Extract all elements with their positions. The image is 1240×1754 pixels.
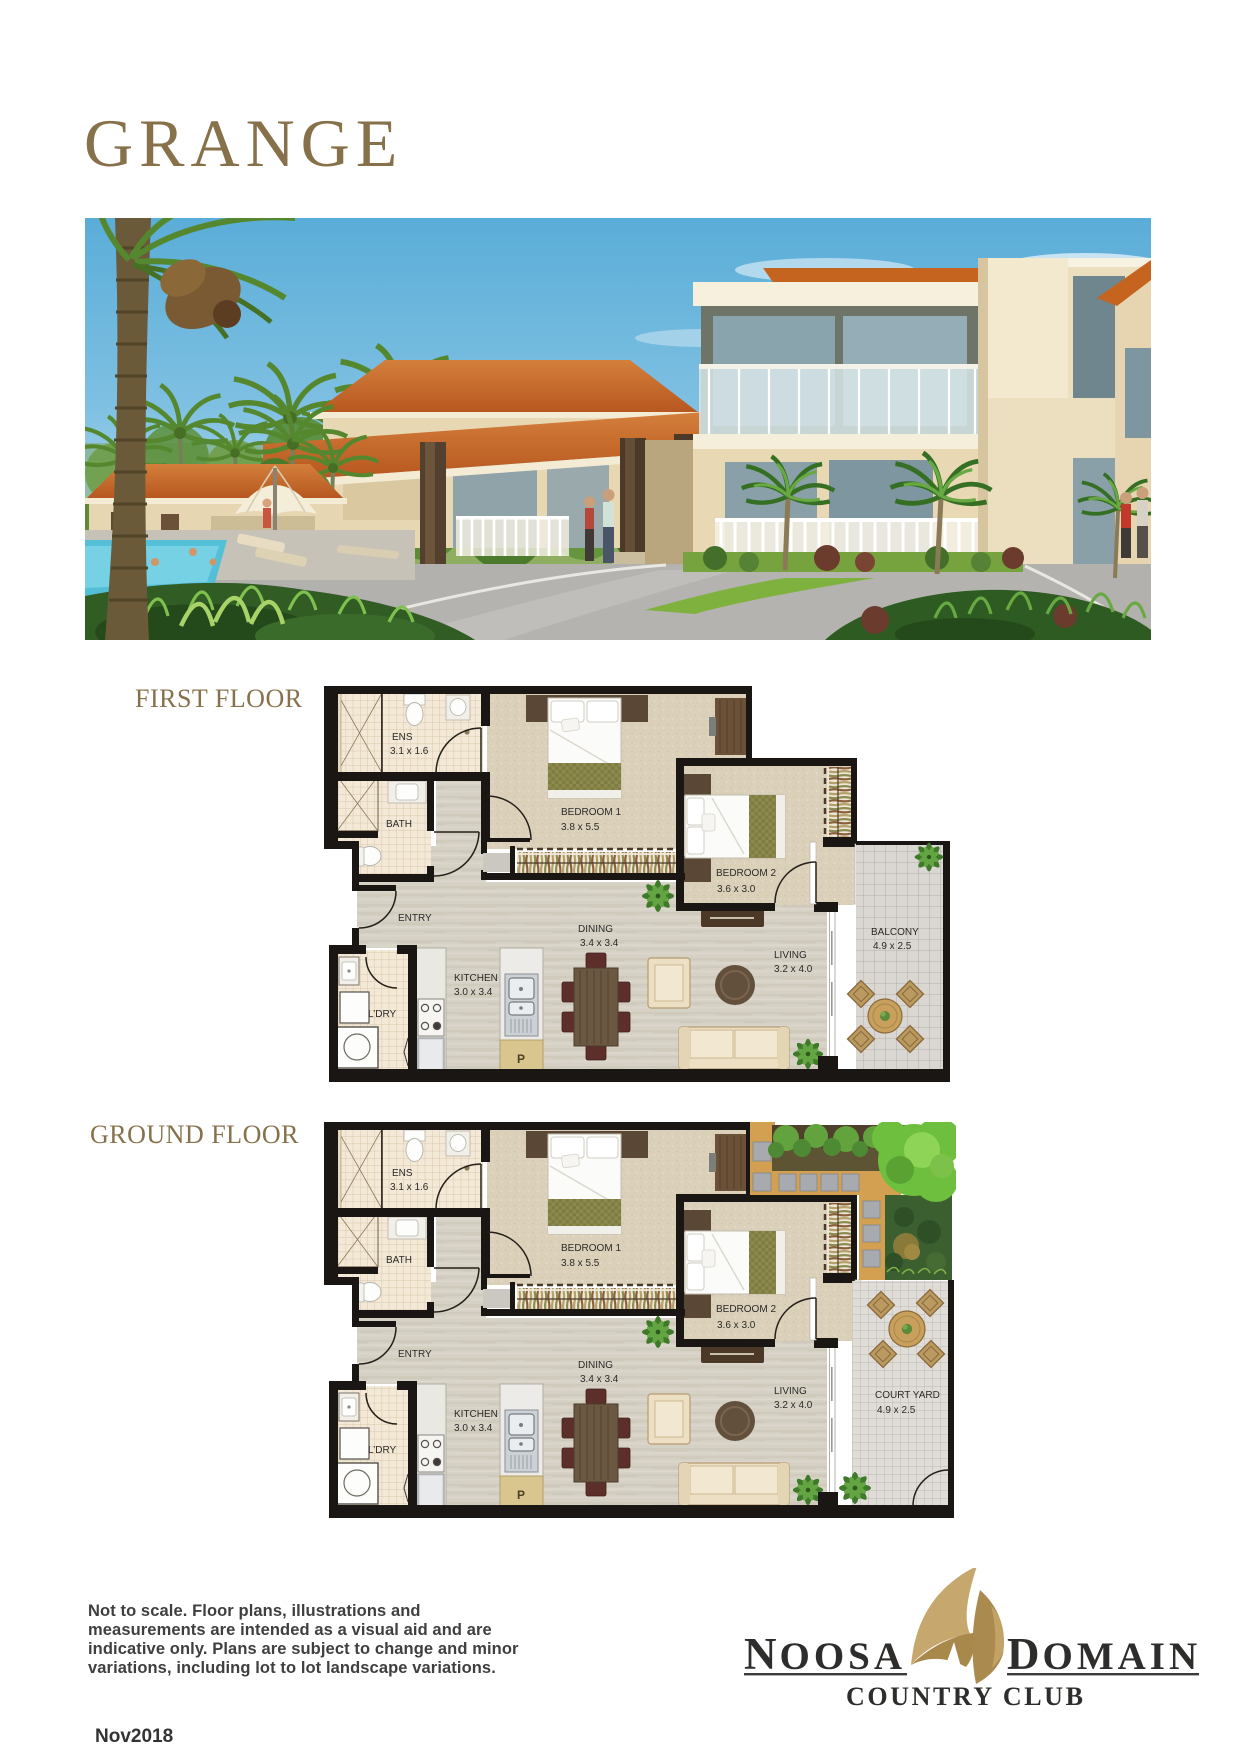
svg-text:P: P: [517, 1052, 525, 1066]
svg-text:3.1 x 1.6: 3.1 x 1.6: [390, 1182, 429, 1193]
svg-text:DINING: DINING: [578, 1360, 613, 1371]
svg-text:ENTRY: ENTRY: [398, 913, 432, 924]
svg-text:3.2 x 4.0: 3.2 x 4.0: [774, 964, 813, 975]
svg-text:3.0 x 3.4: 3.0 x 3.4: [454, 1423, 493, 1434]
svg-text:4.9 x 2.5: 4.9 x 2.5: [873, 941, 912, 952]
svg-text:NOOSA: NOOSA: [744, 1629, 906, 1679]
svg-text:BEDROOM 1: BEDROOM 1: [561, 807, 621, 818]
svg-text:BATH: BATH: [386, 1255, 412, 1266]
svg-text:DINING: DINING: [578, 924, 613, 935]
svg-text:3.1 x 1.6: 3.1 x 1.6: [390, 746, 429, 757]
svg-text:3.2 x 4.0: 3.2 x 4.0: [774, 1400, 813, 1411]
svg-text:3.6 x 3.0: 3.6 x 3.0: [717, 884, 756, 895]
svg-text:BEDROOM 1: BEDROOM 1: [561, 1243, 621, 1254]
svg-text:LIVING: LIVING: [774, 1386, 807, 1397]
svg-text:P: P: [517, 1488, 525, 1502]
svg-text:KITCHEN: KITCHEN: [454, 973, 498, 984]
svg-text:3.0 x 3.4: 3.0 x 3.4: [454, 987, 493, 998]
svg-text:BALCONY: BALCONY: [871, 927, 919, 938]
svg-text:3.4 x 3.4: 3.4 x 3.4: [580, 1374, 619, 1385]
svg-text:ENTRY: ENTRY: [398, 1349, 432, 1360]
svg-text:ENS: ENS: [392, 1168, 413, 1179]
svg-text:3.8 x 5.5: 3.8 x 5.5: [561, 1258, 600, 1269]
svg-text:KITCHEN: KITCHEN: [454, 1409, 498, 1420]
svg-text:4.9 x 2.5: 4.9 x 2.5: [877, 1405, 916, 1416]
svg-text:3.8 x 5.5: 3.8 x 5.5: [561, 822, 600, 833]
svg-text:BEDROOM 2: BEDROOM 2: [716, 1304, 776, 1315]
svg-text:3.6 x 3.0: 3.6 x 3.0: [717, 1320, 756, 1331]
svg-text:COUNTRY CLUB: COUNTRY CLUB: [846, 1682, 1086, 1711]
svg-text:BEDROOM 2: BEDROOM 2: [716, 868, 776, 879]
svg-text:L’DRY: L’DRY: [368, 1445, 396, 1456]
svg-text:L’DRY: L’DRY: [368, 1009, 396, 1020]
svg-text:BATH: BATH: [386, 819, 412, 830]
svg-text:COURT YARD: COURT YARD: [875, 1390, 940, 1401]
svg-text:3.4 x 3.4: 3.4 x 3.4: [580, 938, 619, 949]
svg-text:LIVING: LIVING: [774, 950, 807, 961]
svg-text:DOMAIN: DOMAIN: [1007, 1629, 1201, 1679]
svg-text:ENS: ENS: [392, 732, 413, 743]
